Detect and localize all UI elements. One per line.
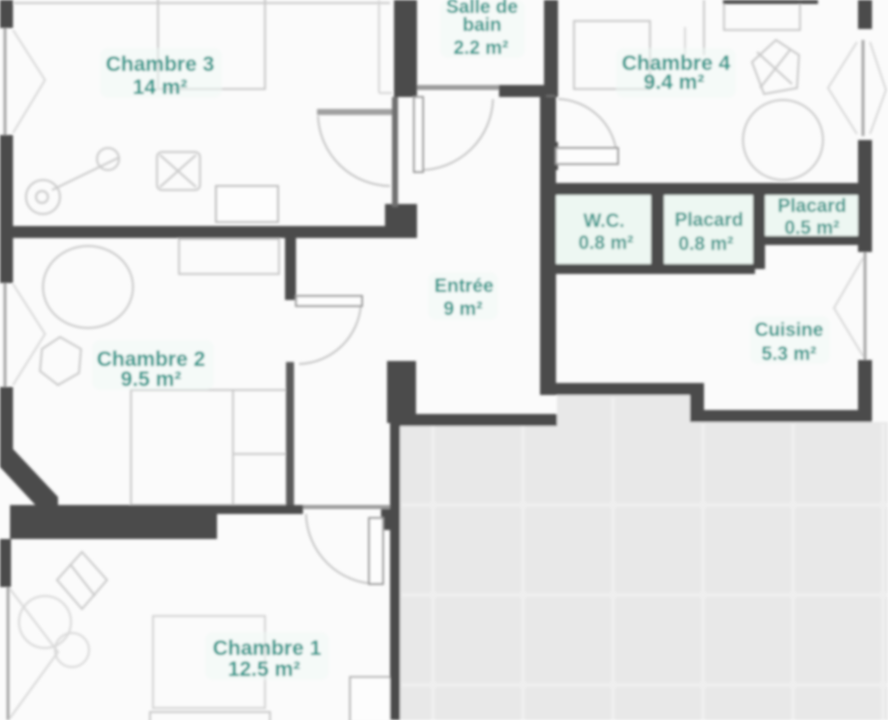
svg-text:Entrée: Entrée bbox=[434, 276, 493, 297]
svg-text:5.3 m²: 5.3 m² bbox=[762, 344, 817, 365]
svg-text:9.5 m²: 9.5 m² bbox=[121, 368, 182, 391]
svg-text:Cuisine: Cuisine bbox=[755, 320, 824, 341]
svg-text:0.5 m²: 0.5 m² bbox=[785, 218, 840, 239]
svg-text:9.4 m²: 9.4 m² bbox=[644, 71, 705, 94]
svg-text:Chambre 3: Chambre 3 bbox=[106, 53, 215, 76]
svg-text:0.8 m²: 0.8 m² bbox=[679, 234, 734, 255]
svg-text:Chambre 1: Chambre 1 bbox=[213, 637, 322, 660]
svg-text:bain: bain bbox=[462, 15, 501, 36]
svg-text:9 m²: 9 m² bbox=[443, 299, 482, 320]
svg-text:12.5 m²: 12.5 m² bbox=[228, 658, 300, 681]
svg-text:2.2 m²: 2.2 m² bbox=[454, 38, 509, 59]
svg-text:Placard: Placard bbox=[675, 210, 744, 231]
svg-text:14 m²: 14 m² bbox=[133, 76, 188, 99]
svg-text:0.8 m²: 0.8 m² bbox=[579, 233, 634, 254]
svg-text:Placard: Placard bbox=[778, 196, 847, 217]
svg-text:W.C.: W.C. bbox=[583, 211, 624, 232]
